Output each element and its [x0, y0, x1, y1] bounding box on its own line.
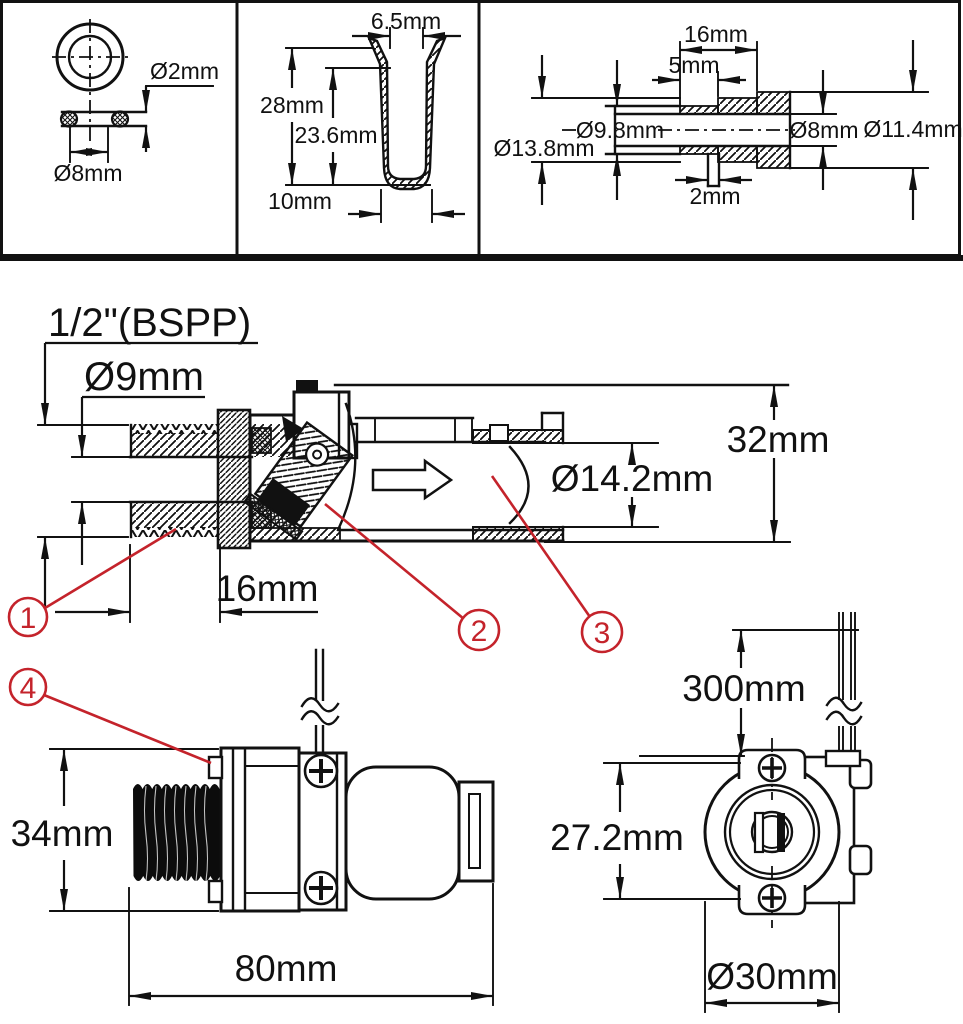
dim-label-side-height: 34mm	[11, 813, 114, 854]
callout-2: 2	[471, 615, 488, 648]
main-section-view: 1/2"(BSPP) Ø9mm 16mm 32mm Ø14.2mm	[9, 301, 829, 652]
oring-panel: Ø2mm Ø8mm	[52, 19, 219, 186]
technical-drawing: Ø2mm Ø8mm 6.5mm 28mm 23.6mm 10mm	[0, 0, 963, 1024]
dim-label-thread-length: 16mm	[216, 568, 319, 609]
callout-4: 4	[20, 672, 37, 705]
dim-label-main-height: 32mm	[727, 419, 830, 460]
dim-label-filter-inner-height: 23.6mm	[294, 122, 377, 148]
front-view: 300mm 27.2mm Ø30mm	[550, 613, 871, 1012]
side-view: 34mm 80mm 4	[10, 650, 493, 1005]
dim-label-filter-height: 28mm	[260, 92, 324, 118]
drawing-page: Ø2mm Ø8mm 6.5mm 28mm 23.6mm 10mm	[0, 0, 963, 1024]
callout-1: 1	[20, 602, 37, 635]
dim-label-fitting-length: 16mm	[684, 21, 748, 47]
dim-label-fitting-collar-od: Ø11.4mm	[863, 116, 962, 142]
dim-label-inlet-bore: Ø9mm	[84, 355, 204, 399]
dim-label-side-length: 80mm	[235, 948, 338, 989]
dim-label-body-diameter: Ø30mm	[706, 956, 838, 997]
dim-label-fitting-pin: 2mm	[689, 183, 740, 209]
fitting-panel: 16mm 5mm Ø9.8mm Ø13.8mm Ø8mm Ø11.4mm 2mm	[494, 21, 963, 220]
dim-label-outlet-bore: Ø14.2mm	[551, 458, 713, 499]
dim-label-fitting-bore: Ø8mm	[790, 117, 859, 143]
dim-label-fitting-flange-od: Ø13.8mm	[494, 135, 595, 161]
dim-label-wire-length: 300mm	[682, 668, 805, 709]
dim-label-fitting-step: 5mm	[668, 52, 719, 78]
dim-label-screw-spacing: 27.2mm	[550, 817, 684, 858]
callout-3: 3	[594, 617, 611, 650]
dim-label-thread-spec: 1/2"(BSPP)	[48, 301, 251, 345]
filter-panel: 6.5mm 28mm 23.6mm 10mm	[260, 8, 465, 222]
dim-label-filter-base: 10mm	[268, 188, 332, 214]
dim-label-oring-cross-section: Ø2mm	[150, 58, 219, 84]
dim-label-filter-opening: 6.5mm	[371, 8, 441, 34]
dim-label-oring-inner-diameter: Ø8mm	[54, 160, 123, 186]
